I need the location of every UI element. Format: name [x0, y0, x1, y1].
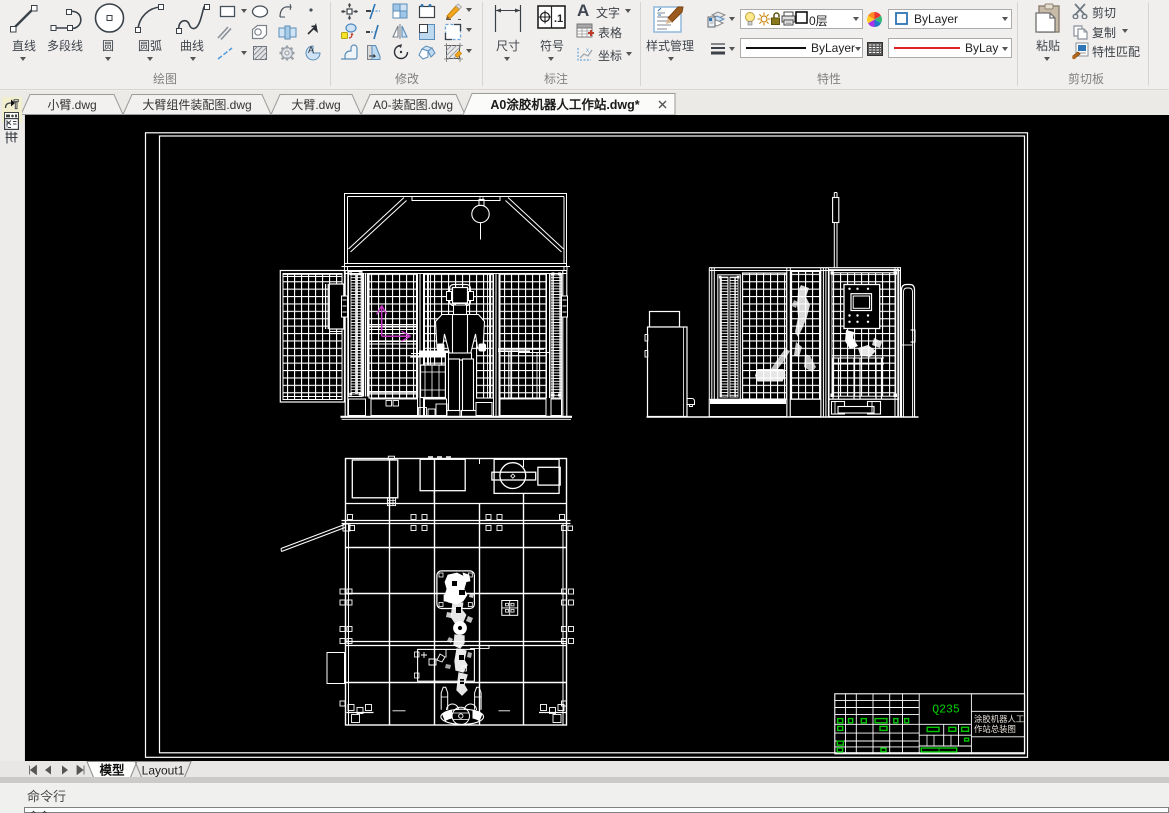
svg-text:Layout1: Layout1 — [142, 764, 185, 778]
svg-text:涂胶机器人工: 涂胶机器人工 — [974, 714, 1024, 724]
svg-text:大臂.dwg: 大臂.dwg — [291, 98, 340, 112]
svg-text:A: A — [308, 45, 314, 55]
svg-text:.1: .1 — [554, 13, 563, 25]
svg-text:x: x — [586, 48, 589, 54]
svg-text:模型: 模型 — [99, 763, 125, 778]
svg-text:大臂组件装配图.dwg: 大臂组件装配图.dwg — [142, 98, 251, 112]
svg-text:小臂.dwg: 小臂.dwg — [47, 98, 96, 112]
svg-text:作站总装图: 作站总装图 — [974, 724, 1016, 734]
svg-text:A0涂胶机器人工作站.dwg*: A0涂胶机器人工作站.dwg* — [490, 97, 639, 112]
svg-text:A0-装配图.dwg: A0-装配图.dwg — [373, 98, 453, 112]
svg-text:Q235: Q235 — [932, 704, 960, 717]
